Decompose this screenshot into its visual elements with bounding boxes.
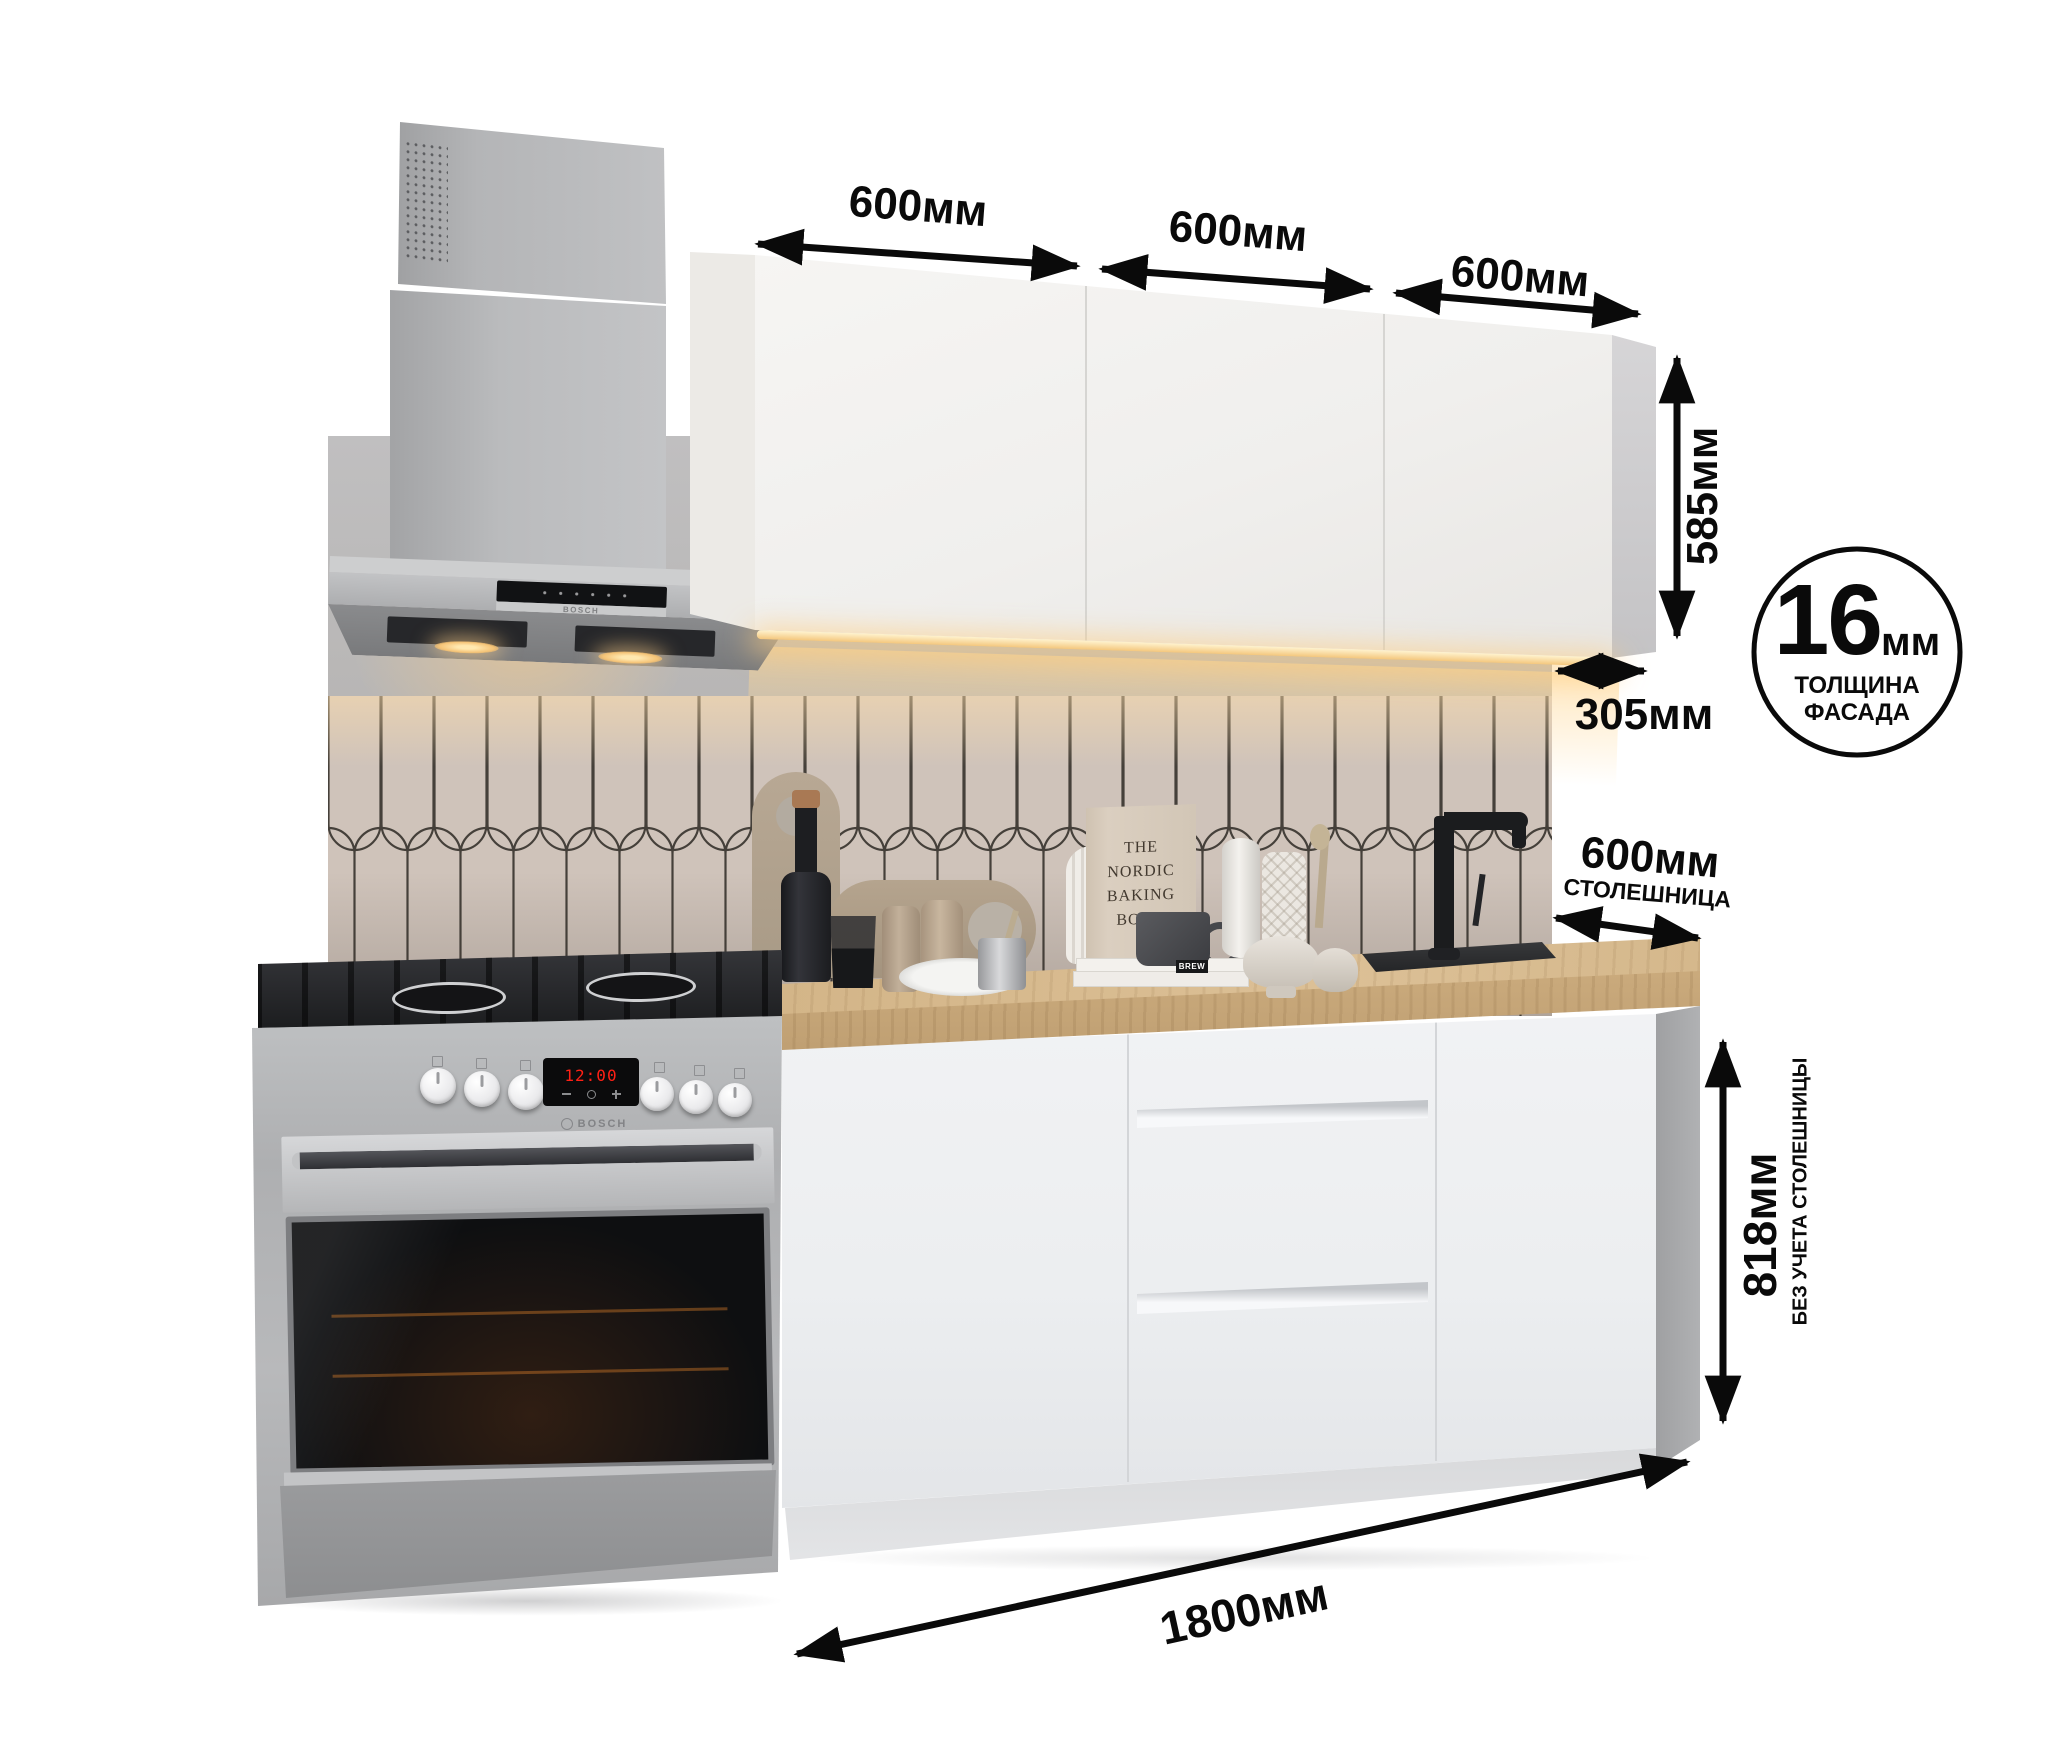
kitchen-dimension-diagram: BOSCH — [0, 0, 2048, 1757]
arrow-upper-width-2 — [1102, 269, 1370, 289]
dim-label-base-height: 818мм — [1733, 1140, 1787, 1310]
dim-label-base-height-caption: БЕЗ УЧЕТА СТОЛЕШНИЦЫ — [1790, 1057, 1813, 1327]
badge-value: 16 — [1774, 578, 1881, 663]
dim-label-upper-height: 585мм — [1678, 416, 1728, 576]
facade-badge: 16 мм ТОЛЩИНА ФАСАДА — [1755, 556, 1959, 748]
badge-unit: мм — [1881, 625, 1940, 659]
badge-caption-2: ФАСАДА — [1804, 700, 1910, 726]
arrow-upper-width-1 — [758, 244, 1077, 266]
arrow-counter-600 — [1556, 918, 1698, 938]
badge-caption-1: ТОЛЩИНА — [1794, 673, 1919, 699]
dim-label-upper-depth: 305мм — [1544, 690, 1744, 740]
